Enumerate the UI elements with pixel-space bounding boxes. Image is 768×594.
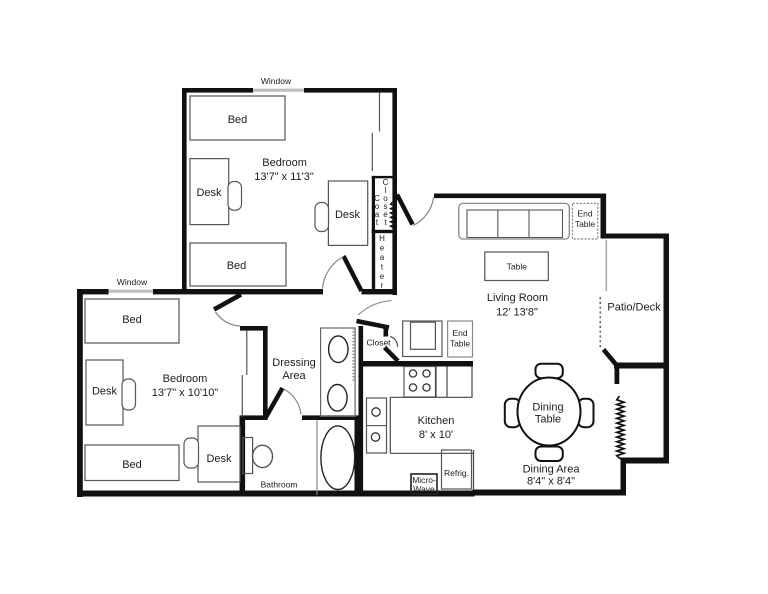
svg-text:Bathroom: Bathroom <box>261 480 298 490</box>
svg-text:Desk: Desk <box>92 386 118 398</box>
svg-text:a: a <box>380 253 385 262</box>
svg-text:r: r <box>381 281 384 290</box>
svg-text:Dining: Dining <box>532 402 563 414</box>
svg-text:Living Room: Living Room <box>487 292 548 304</box>
svg-text:Table: Table <box>575 219 596 229</box>
svg-text:Bedroom: Bedroom <box>262 157 307 169</box>
svg-text:Dining Area: Dining Area <box>523 464 581 476</box>
svg-text:e: e <box>380 272 385 281</box>
svg-text:End: End <box>577 209 592 219</box>
svg-text:Refrig.: Refrig. <box>444 468 469 478</box>
svg-text:t: t <box>376 218 379 227</box>
svg-text:13'7" x 10'10": 13'7" x 10'10" <box>152 387 219 399</box>
svg-text:Wave: Wave <box>413 484 435 494</box>
svg-text:Table: Table <box>535 414 561 426</box>
svg-text:Dressing: Dressing <box>272 357 315 369</box>
svg-text:Desk: Desk <box>196 187 222 199</box>
svg-text:t: t <box>384 218 387 227</box>
svg-text:Desk: Desk <box>335 209 361 221</box>
svg-text:Bed: Bed <box>122 459 142 471</box>
svg-text:t: t <box>381 263 384 272</box>
svg-text:Area: Area <box>282 370 306 382</box>
svg-text:Patio/Deck: Patio/Deck <box>607 302 661 314</box>
svg-text:Kitchen: Kitchen <box>418 415 455 427</box>
svg-text:13'7" x 11'3": 13'7" x 11'3" <box>254 171 314 183</box>
svg-text:Bed: Bed <box>122 314 142 326</box>
svg-text:8' x 10': 8' x 10' <box>419 429 453 441</box>
svg-text:Closet: Closet <box>366 338 391 348</box>
svg-text:Desk: Desk <box>206 453 232 465</box>
svg-text:Bedroom: Bedroom <box>163 373 208 385</box>
svg-text:e: e <box>380 244 385 253</box>
svg-text:Table: Table <box>507 262 528 272</box>
svg-text:Table: Table <box>450 339 471 349</box>
svg-text:Bed: Bed <box>227 260 247 272</box>
svg-text:Window: Window <box>261 76 292 86</box>
svg-text:End: End <box>452 328 467 338</box>
svg-text:12' 13'8": 12' 13'8" <box>496 307 538 319</box>
svg-text:H: H <box>379 234 385 243</box>
svg-text:8'4" x 8'4": 8'4" x 8'4" <box>527 476 575 488</box>
svg-text:Window: Window <box>117 277 148 287</box>
svg-text:Bed: Bed <box>228 114 248 126</box>
